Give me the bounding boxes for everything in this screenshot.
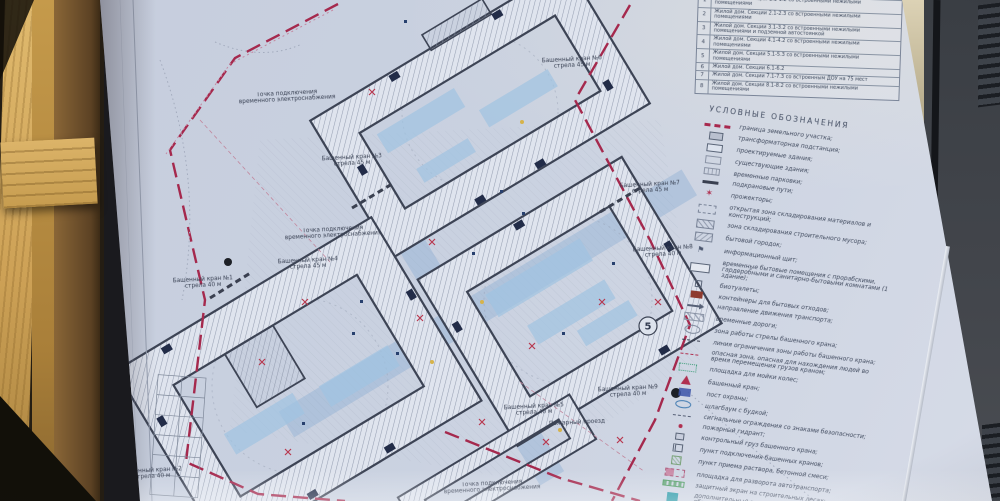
building-number-badge: 5 bbox=[639, 317, 657, 335]
table-row-number: 4 bbox=[697, 35, 710, 48]
tower-crane-icon bbox=[681, 375, 692, 385]
louver-vents bbox=[978, 3, 1000, 108]
crane-rail-icon bbox=[702, 179, 718, 184]
crane-power-point-icon bbox=[672, 443, 683, 452]
badge-number: 5 bbox=[645, 322, 652, 333]
buildings-table: 1 Жилой дом. Секции 1.1-1.2 со встроенны… bbox=[694, 0, 902, 101]
boundary-offset-line bbox=[166, 10, 333, 154]
table-row-number: 5 bbox=[697, 49, 710, 62]
projected-building-icon bbox=[706, 143, 723, 153]
info-board-icon bbox=[697, 244, 708, 254]
control-weight-icon bbox=[674, 432, 684, 440]
wc-icon bbox=[694, 280, 702, 288]
crane-limit-line-icon bbox=[682, 339, 700, 342]
right-column: 1 Жилой дом. Секции 1.1-1.2 со встроенны… bbox=[698, 0, 912, 501]
photo-of-site-plan-board: 5 Точка подключениявременного электросна… bbox=[0, 0, 1000, 501]
floodlight-icon bbox=[703, 188, 714, 199]
existing-building-icon bbox=[705, 155, 722, 165]
storage-waste-icon bbox=[696, 218, 715, 229]
barrier-gate-icon bbox=[675, 399, 692, 409]
storage-open-icon bbox=[698, 203, 717, 214]
crane-work-zone-icon bbox=[684, 323, 701, 334]
waste-bin-icon bbox=[690, 290, 703, 298]
wheel-wash-icon bbox=[678, 362, 697, 372]
frame-shadow-on-paper bbox=[96, 0, 156, 501]
paper-sheen bbox=[120, 470, 1000, 501]
table-row-number: 3 bbox=[698, 22, 711, 35]
temp-road-icon bbox=[684, 311, 705, 321]
marker-dot bbox=[224, 258, 232, 266]
wood-slat bbox=[32, 0, 56, 501]
table-row-number: 8 bbox=[695, 80, 708, 93]
temp-parking-icon bbox=[703, 167, 720, 176]
safety-fence-icon bbox=[673, 414, 691, 417]
boundary-dashes-icon bbox=[704, 122, 730, 128]
wood-shadow-gap bbox=[54, 0, 100, 501]
transformer-box-icon bbox=[709, 131, 724, 141]
wood-crossbar bbox=[0, 138, 97, 209]
danger-zone-icon bbox=[680, 352, 698, 355]
household-camp-icon bbox=[694, 231, 713, 242]
site-plan-sheet: 5 Точка подключениявременного электросна… bbox=[0, 0, 1000, 501]
table-row-number: 2 bbox=[698, 8, 711, 21]
hydrant-icon bbox=[678, 423, 682, 427]
temp-rooms-icon bbox=[690, 261, 711, 272]
concrete-point-icon bbox=[671, 455, 682, 465]
guard-post-icon bbox=[678, 388, 691, 397]
traffic-direction-icon bbox=[687, 303, 703, 307]
